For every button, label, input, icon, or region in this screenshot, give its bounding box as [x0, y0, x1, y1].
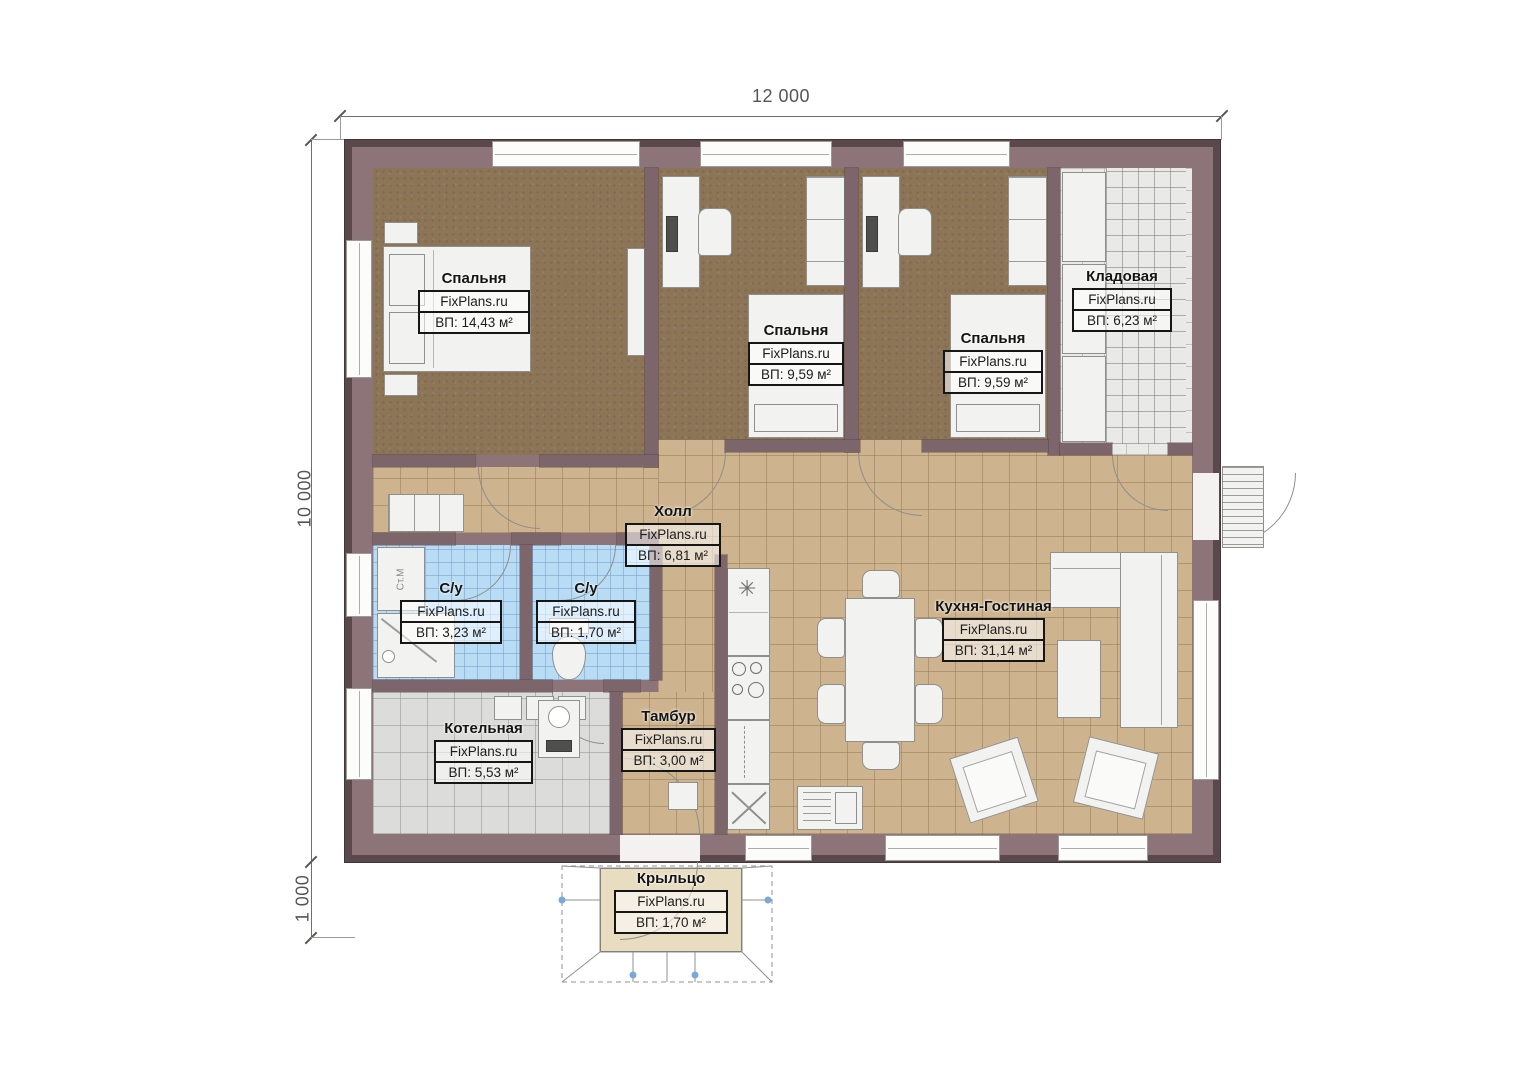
dimension-extension: [311, 937, 355, 938]
watermark: FixPlans.ru: [436, 742, 531, 763]
dining-chair: [915, 684, 943, 724]
wall-segment: [373, 533, 455, 545]
room-area: ВП: 5,53 м²: [436, 763, 531, 782]
dimension-width-line: [340, 116, 1222, 117]
wall-segment: [1048, 168, 1060, 455]
room-name: С/у: [439, 580, 462, 598]
room-name: Спальня: [764, 322, 829, 340]
side-entrance-steps: [1222, 466, 1264, 548]
stove-burner: [750, 662, 762, 674]
kitchen-counter: [727, 720, 770, 784]
watermark: FixPlans.ru: [402, 602, 500, 623]
floor-plan: 12 000 10 000 1 000: [0, 0, 1528, 1080]
wall-segment: [373, 455, 475, 467]
watermark: FixPlans.ru: [750, 344, 842, 365]
pillow: [754, 404, 838, 432]
watermark: FixPlans.ru: [945, 352, 1041, 373]
wall-segment: [512, 533, 560, 545]
room-label-boiler-room: Котельная FixPlans.ru ВП: 5,53 м²: [436, 720, 531, 784]
room-label-bathroom-2: С/у FixPlans.ru ВП: 1,70 м²: [538, 580, 634, 644]
computer-monitor: [866, 216, 878, 252]
stove-burner: [732, 684, 743, 695]
room-label-bedroom-2: Спальня FixPlans.ru ВП: 9,59 м²: [750, 322, 842, 386]
coffee-table: [1057, 640, 1101, 718]
shower-drain-icon: [382, 650, 395, 663]
corner-sofa: [1120, 552, 1178, 728]
room-info-box: FixPlans.ru ВП: 14,43 м²: [418, 290, 530, 334]
vanity-unit: [494, 696, 522, 720]
window: [903, 141, 1010, 167]
wardrobe: [806, 176, 845, 286]
wall-segment: [645, 168, 658, 467]
porch-node-marker: [765, 897, 772, 904]
dining-chair: [817, 684, 845, 724]
stove-burner: [732, 662, 746, 676]
window: [346, 240, 372, 378]
room-label-bathroom-1: С/у FixPlans.ru ВП: 3,23 м²: [402, 580, 500, 644]
room-label-porch: Крыльцо FixPlans.ru ВП: 1,70 м²: [616, 870, 726, 934]
watermark: FixPlans.ru: [538, 602, 634, 623]
counter-door-dash: [744, 726, 745, 778]
porch-node-marker: [692, 972, 699, 979]
wardrobe: [1008, 176, 1047, 286]
room-area: ВП: 1,70 м²: [616, 913, 726, 932]
room-name: Кладовая: [1086, 268, 1158, 286]
room-name: Крыльцо: [637, 870, 705, 888]
wall-segment: [604, 680, 640, 692]
fridge: [727, 784, 770, 830]
dresser: [388, 494, 464, 532]
watermark: FixPlans.ru: [623, 730, 714, 751]
room-label-vestibule: Тамбур FixPlans.ru ВП: 3,00 м²: [623, 708, 714, 772]
room-name: Холл: [654, 503, 692, 521]
dishwasher-door: [835, 792, 857, 824]
dining-chair: [862, 742, 900, 770]
room-label-kitchen-living: Кухня-Гостиная FixPlans.ru ВП: 31,14 м²: [944, 598, 1043, 662]
dimension-extension: [340, 116, 341, 140]
counter-divider: [729, 612, 768, 613]
room-area: ВП: 9,59 м²: [945, 373, 1041, 392]
room-name: Тамбур: [641, 708, 695, 726]
room-name: Кухня-Гостиная: [935, 598, 1052, 616]
dimension-height-line: [311, 140, 312, 862]
nightstand: [384, 374, 418, 396]
storage-shelf: [1062, 172, 1106, 262]
dimension-extension: [311, 139, 345, 140]
room-info-box: FixPlans.ru ВП: 3,00 м²: [621, 728, 716, 772]
wall-segment: [520, 545, 532, 680]
window: [700, 141, 832, 167]
room-label-hall: Холл FixPlans.ru ВП: 6,81 м²: [627, 503, 719, 567]
desk-chair: [898, 208, 932, 256]
wall-segment: [725, 440, 860, 452]
watermark: FixPlans.ru: [420, 292, 528, 313]
dishwasher-vents: [803, 792, 831, 824]
dimension-width-label: 12 000: [340, 86, 1222, 107]
room-info-box: FixPlans.ru ВП: 6,23 м²: [1072, 288, 1172, 332]
window: [745, 835, 812, 861]
room-label-bedroom-3: Спальня FixPlans.ru ВП: 9,59 м²: [945, 330, 1041, 394]
watermark: FixPlans.ru: [616, 892, 726, 913]
room-area: ВП: 6,23 м²: [1074, 311, 1170, 330]
dining-chair: [817, 618, 845, 658]
room-name: Спальня: [442, 270, 507, 288]
room-info-box: FixPlans.ru ВП: 3,23 м²: [400, 600, 502, 644]
wall-segment: [373, 680, 552, 692]
boiler-flue-icon: [548, 706, 570, 728]
porch-node-marker: [630, 972, 637, 979]
entrance-door-opening: [620, 835, 700, 861]
nightstand: [384, 222, 418, 244]
room-info-box: FixPlans.ru ВП: 9,59 м²: [943, 350, 1043, 394]
wall-segment: [1168, 443, 1192, 455]
boiler-panel: [546, 740, 572, 752]
room-info-box: FixPlans.ru ВП: 31,14 м²: [942, 618, 1045, 662]
window: [346, 688, 372, 780]
room-area: ВП: 14,43 м²: [420, 313, 528, 332]
wall-segment: [922, 440, 1048, 452]
porch-node-marker: [559, 897, 566, 904]
room-area: ВП: 3,00 м²: [623, 751, 714, 770]
window: [346, 553, 372, 617]
room-info-box: FixPlans.ru ВП: 6,81 м²: [625, 523, 721, 567]
storage-shelf: [1062, 356, 1106, 442]
room-area: ВП: 6,81 м²: [627, 546, 719, 565]
room-name: С/у: [574, 580, 597, 598]
dining-chair: [915, 618, 943, 658]
room-area: ВП: 9,59 м²: [750, 365, 842, 384]
room-area: ВП: 1,70 м²: [538, 623, 634, 642]
side-door-opening: [1193, 473, 1219, 540]
window: [492, 141, 640, 167]
room-name: Спальня: [961, 330, 1026, 348]
desk-chair: [698, 208, 732, 256]
room-label-bedroom-1: Спальня FixPlans.ru ВП: 14,43 м²: [420, 270, 528, 334]
window: [1193, 600, 1219, 780]
room-info-box: FixPlans.ru ВП: 1,70 м²: [614, 890, 728, 934]
stove-burner: [748, 682, 764, 698]
watermark: FixPlans.ru: [944, 620, 1043, 641]
window: [885, 835, 1000, 861]
room-info-box: FixPlans.ru ВП: 9,59 м²: [748, 342, 844, 386]
computer-monitor: [666, 216, 678, 252]
wall-segment: [845, 168, 858, 452]
window: [1058, 835, 1148, 861]
watermark: FixPlans.ru: [627, 525, 719, 546]
room-area: ВП: 3,23 м²: [402, 623, 500, 642]
dining-chair: [862, 570, 900, 598]
wardrobe: [627, 248, 645, 356]
room-info-box: FixPlans.ru ВП: 1,70 м²: [536, 600, 636, 644]
dimension-height-label: 10 000: [295, 439, 316, 559]
pillow: [956, 404, 1040, 432]
room-info-box: FixPlans.ru ВП: 5,53 м²: [434, 740, 533, 784]
room-name: Котельная: [444, 720, 523, 738]
room-label-storage: Кладовая FixPlans.ru ВП: 6,23 м²: [1074, 268, 1170, 332]
dimension-extension: [1221, 116, 1222, 140]
room-area: ВП: 31,14 м²: [944, 641, 1043, 660]
ceiling-light-icon: ✳: [738, 578, 756, 600]
wall-segment: [540, 455, 658, 467]
watermark: FixPlans.ru: [1074, 290, 1170, 311]
cabinet: [668, 782, 698, 810]
wall-segment: [715, 555, 727, 834]
dimension-porch-line: [311, 862, 312, 938]
wall-segment: [1060, 443, 1112, 455]
dining-table: [845, 598, 915, 742]
